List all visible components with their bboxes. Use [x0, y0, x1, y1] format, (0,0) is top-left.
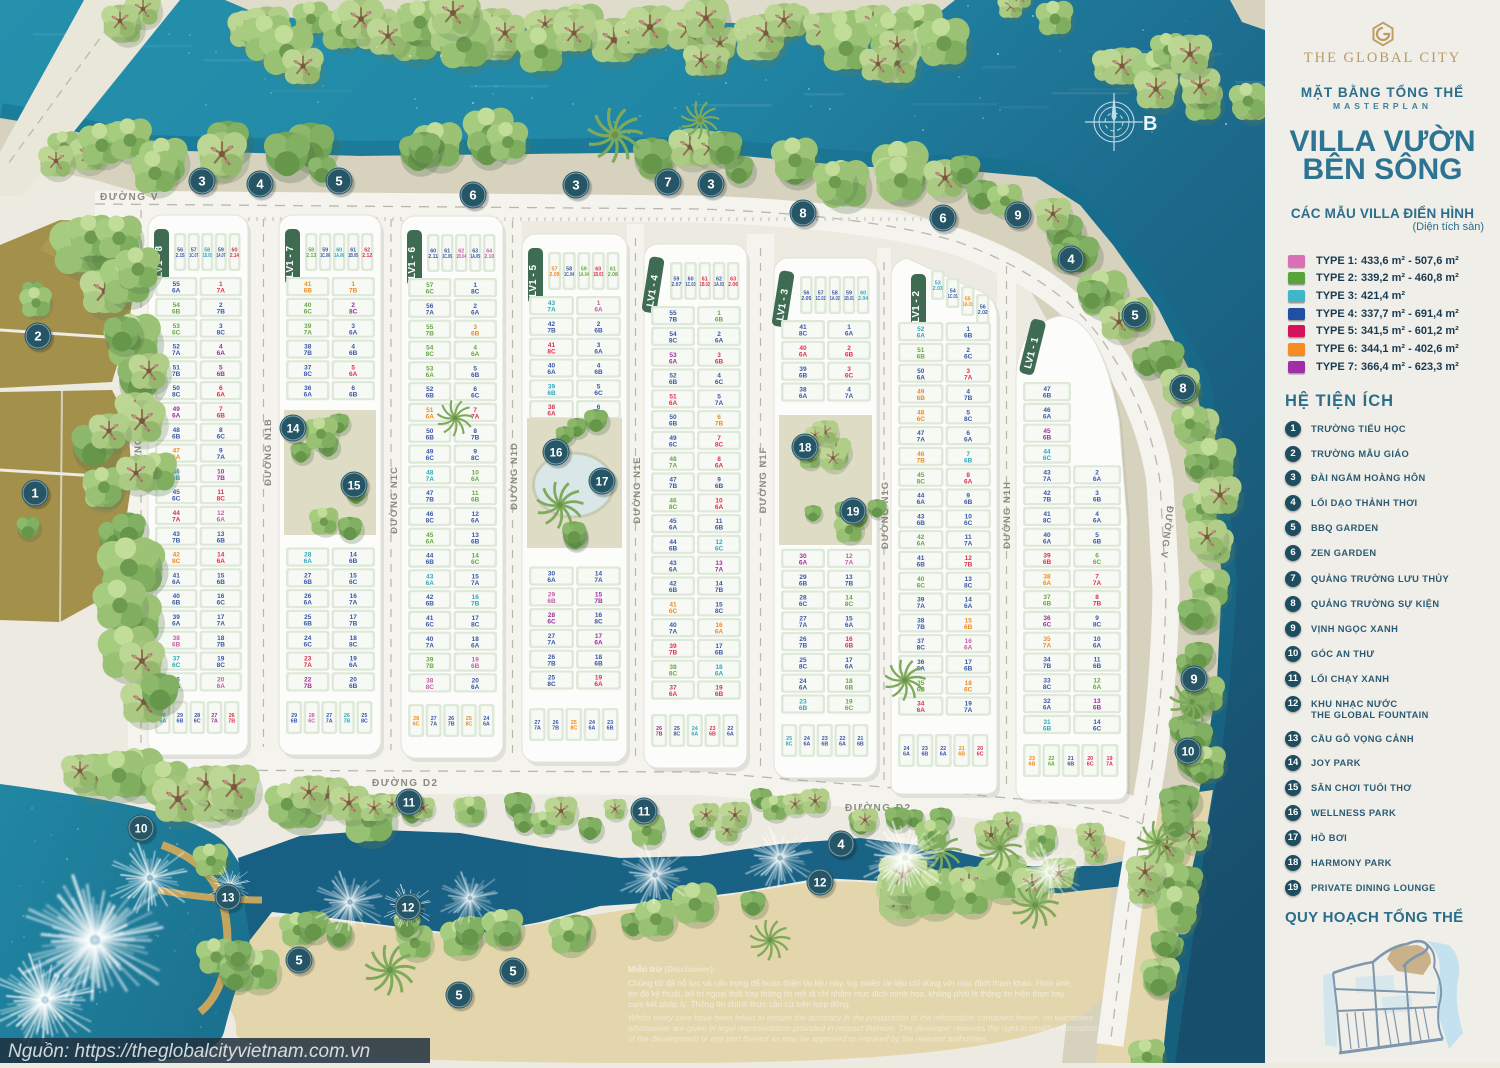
svg-text:ĐƯỜNG N1H: ĐƯỜNG N1H — [1001, 481, 1013, 549]
svg-text:176A: 176A — [845, 657, 854, 671]
svg-text:267B: 267B — [228, 713, 235, 724]
svg-text:447A: 447A — [172, 510, 181, 524]
svg-text:496C: 496C — [669, 435, 678, 449]
svg-text:126A: 126A — [471, 511, 480, 525]
svg-text:406A: 406A — [547, 363, 556, 377]
svg-text:4: 4 — [1067, 252, 1075, 267]
svg-text:536A: 536A — [426, 365, 435, 379]
svg-text:397B: 397B — [669, 643, 678, 657]
svg-text:Miễn trừ (Disclaimer):: Miễn trừ (Disclaimer): — [628, 964, 716, 974]
svg-text:378C: 378C — [304, 364, 313, 378]
svg-text:137B: 137B — [845, 574, 854, 588]
svg-text:196A: 196A — [594, 675, 603, 689]
svg-text:376A: 376A — [669, 685, 678, 699]
svg-text:206C: 206C — [1087, 756, 1094, 767]
svg-text:376C: 376C — [172, 656, 181, 670]
svg-text:467B: 467B — [917, 451, 926, 465]
svg-text:127B: 127B — [964, 555, 973, 569]
svg-text:116B: 116B — [1093, 657, 1102, 671]
svg-text:267B: 267B — [656, 726, 663, 737]
svg-text:476B: 476B — [1043, 386, 1052, 400]
svg-text:456B: 456B — [1043, 428, 1052, 442]
svg-text:386A: 386A — [799, 387, 808, 401]
svg-text:357A: 357A — [1043, 636, 1052, 650]
svg-text:306A: 306A — [547, 571, 556, 585]
svg-text:426B: 426B — [426, 594, 435, 608]
svg-text:418C: 418C — [1043, 511, 1052, 525]
svg-text:116B: 116B — [715, 518, 724, 532]
svg-text:267B: 267B — [552, 720, 559, 731]
svg-text:146B: 146B — [349, 552, 358, 566]
svg-text:9: 9 — [1014, 208, 1021, 223]
svg-text:286C: 286C — [799, 595, 808, 609]
svg-text:236B: 236B — [821, 736, 828, 747]
svg-text:477A: 477A — [917, 430, 926, 444]
svg-text:567A: 567A — [426, 303, 435, 317]
svg-text:157B: 157B — [594, 591, 603, 605]
svg-text:216B: 216B — [857, 736, 864, 747]
svg-text:437B: 437B — [172, 531, 181, 545]
svg-text:506B: 506B — [426, 428, 435, 442]
svg-text:236B: 236B — [709, 726, 716, 737]
svg-text:546B: 546B — [172, 302, 181, 316]
svg-text:456A: 456A — [426, 532, 435, 546]
svg-text:446B: 446B — [426, 553, 435, 567]
svg-text:427B: 427B — [547, 321, 556, 335]
svg-text:166A: 166A — [964, 638, 973, 652]
svg-text:416C: 416C — [669, 601, 678, 615]
svg-text:12: 12 — [814, 878, 827, 890]
svg-text:226A: 226A — [1048, 756, 1055, 767]
svg-text:226A: 226A — [839, 736, 846, 747]
svg-text:5: 5 — [1131, 308, 1138, 323]
svg-text:246A: 246A — [799, 678, 808, 692]
svg-text:197A: 197A — [964, 701, 973, 715]
svg-text:4: 4 — [256, 177, 264, 192]
svg-text:16: 16 — [550, 448, 563, 460]
svg-text:148C: 148C — [845, 595, 854, 609]
svg-text:466A: 466A — [1043, 407, 1052, 421]
svg-text:387B: 387B — [917, 617, 926, 631]
svg-text:536A: 536A — [669, 352, 678, 366]
svg-text:136B: 136B — [217, 531, 226, 545]
svg-text:386B: 386B — [172, 635, 181, 649]
svg-text:557B: 557B — [426, 324, 435, 338]
svg-text:116B: 116B — [471, 490, 480, 504]
svg-text:196A: 196A — [349, 656, 358, 670]
svg-text:12: 12 — [402, 903, 415, 915]
svg-text:117A: 117A — [964, 534, 973, 548]
svg-text:118C: 118C — [217, 489, 226, 503]
svg-text:296B: 296B — [177, 713, 184, 724]
svg-text:286C: 286C — [547, 612, 556, 626]
svg-text:548C: 548C — [426, 345, 435, 359]
svg-text:10: 10 — [135, 824, 148, 836]
svg-text:197A: 197A — [1106, 756, 1113, 767]
svg-text:548C: 548C — [669, 331, 678, 345]
svg-text:526B: 526B — [426, 386, 435, 400]
svg-text:106A: 106A — [471, 469, 480, 483]
svg-text:236B: 236B — [799, 699, 808, 713]
svg-text:186B: 186B — [594, 654, 603, 668]
svg-text:277A: 277A — [326, 713, 333, 724]
svg-text:436A: 436A — [426, 573, 435, 587]
svg-text:5: 5 — [295, 953, 302, 968]
svg-text:388C: 388C — [669, 664, 678, 678]
svg-text:508C: 508C — [172, 385, 181, 399]
svg-text:406A: 406A — [799, 345, 808, 359]
svg-text:18: 18 — [799, 443, 812, 455]
svg-text:326A: 326A — [1043, 698, 1052, 712]
svg-text:306A: 306A — [799, 553, 808, 567]
svg-text:258C: 258C — [361, 713, 368, 724]
svg-text:437A: 437A — [1043, 469, 1052, 483]
svg-text:178C: 178C — [471, 615, 480, 629]
svg-text:487A: 487A — [669, 456, 678, 470]
svg-text:2: 2 — [34, 329, 41, 344]
svg-text:556A: 556A — [172, 281, 181, 295]
svg-text:126C: 126C — [715, 539, 724, 553]
svg-text:216B: 216B — [1067, 756, 1074, 767]
svg-text:156C: 156C — [349, 572, 358, 586]
svg-text:256B: 256B — [304, 614, 313, 628]
svg-text:136B: 136B — [1093, 698, 1102, 712]
svg-text:576C: 576C — [426, 282, 435, 296]
svg-text:236B: 236B — [1029, 756, 1036, 767]
svg-text:396A: 396A — [172, 614, 181, 628]
svg-text:267B: 267B — [343, 713, 350, 724]
svg-text:258C: 258C — [786, 736, 793, 747]
svg-text:106C: 106C — [964, 513, 973, 527]
svg-text:Whilst every care have been ta: Whilst every care have been taken to ens… — [628, 1013, 1093, 1023]
svg-text:ĐƯỜNG N1C: ĐƯỜNG N1C — [388, 466, 400, 534]
svg-text:296B: 296B — [547, 591, 556, 605]
svg-text:156B: 156B — [217, 572, 226, 586]
svg-text:406C: 406C — [917, 576, 926, 590]
svg-text:436A: 436A — [669, 560, 678, 574]
svg-text:4: 4 — [837, 837, 845, 852]
svg-text:136B: 136B — [471, 532, 480, 546]
svg-text:whatsoever are given in legal: whatsoever are given in legal representa… — [628, 1023, 1097, 1033]
svg-text:138C: 138C — [964, 576, 973, 590]
svg-text:496A: 496A — [172, 406, 181, 420]
svg-text:486C: 486C — [917, 409, 926, 423]
svg-text:186A: 186A — [471, 636, 480, 650]
svg-text:246C: 246C — [304, 635, 313, 649]
svg-text:487A: 487A — [426, 469, 435, 483]
svg-text:386A: 386A — [547, 404, 556, 418]
svg-text:428C: 428C — [172, 552, 181, 566]
svg-text:237A: 237A — [304, 656, 313, 670]
svg-text:416A: 416A — [172, 572, 181, 586]
svg-text:517B: 517B — [172, 364, 181, 378]
svg-text:157A: 157A — [471, 573, 480, 587]
svg-text:267B: 267B — [448, 716, 455, 727]
svg-text:286A: 286A — [304, 552, 313, 566]
svg-text:14: 14 — [287, 424, 300, 436]
svg-text:107B: 107B — [217, 468, 226, 482]
svg-text:206B: 206B — [349, 676, 358, 690]
svg-text:407A: 407A — [669, 622, 678, 636]
svg-text:338C: 338C — [1043, 677, 1052, 691]
svg-text:277A: 277A — [547, 633, 556, 647]
svg-text:167A: 167A — [349, 593, 358, 607]
svg-text:396B: 396B — [547, 383, 556, 397]
svg-text:536C: 536C — [172, 323, 181, 337]
svg-text:ĐƯỜNG D2: ĐƯỜNG D2 — [372, 776, 439, 789]
svg-text:236B: 236B — [921, 746, 928, 757]
svg-text:516A: 516A — [426, 407, 435, 421]
svg-text:196B: 196B — [471, 657, 480, 671]
svg-text:388C: 388C — [426, 677, 435, 691]
svg-text:227B: 227B — [304, 676, 313, 690]
svg-text:446A: 446A — [917, 493, 926, 507]
svg-text:11: 11 — [403, 798, 416, 810]
svg-text:156B: 156B — [964, 617, 973, 631]
svg-text:366A: 366A — [304, 385, 313, 399]
svg-text:446C: 446C — [1043, 449, 1052, 463]
svg-text:126A: 126A — [1093, 677, 1102, 691]
svg-text:456A: 456A — [669, 518, 678, 532]
svg-text:286C: 286C — [413, 716, 420, 727]
svg-text:436B: 436B — [917, 513, 926, 527]
svg-text:407A: 407A — [426, 636, 435, 650]
svg-text:168C: 168C — [594, 612, 603, 626]
svg-text:468C: 468C — [669, 497, 678, 511]
svg-text:426B: 426B — [669, 581, 678, 595]
svg-text:506B: 506B — [669, 414, 678, 428]
svg-text:258C: 258C — [673, 726, 680, 737]
svg-text:397B: 397B — [426, 657, 435, 671]
svg-text:176B: 176B — [715, 643, 724, 657]
svg-text:496B: 496B — [917, 389, 926, 403]
svg-text:7: 7 — [664, 175, 671, 190]
svg-text:ĐƯỜNG N1B: ĐƯỜNG N1B — [262, 418, 274, 486]
svg-text:147A: 147A — [594, 571, 603, 585]
svg-text:196B: 196B — [715, 685, 724, 699]
svg-text:468C: 468C — [426, 511, 435, 525]
svg-text:1: 1 — [31, 486, 38, 501]
svg-text:276B: 276B — [304, 572, 313, 586]
svg-text:277A: 277A — [211, 713, 218, 724]
svg-text:3: 3 — [198, 174, 205, 189]
svg-text:206C: 206C — [977, 746, 984, 757]
svg-text:177B: 177B — [349, 614, 358, 628]
svg-text:346A: 346A — [917, 701, 926, 715]
svg-text:386A: 386A — [1043, 573, 1052, 587]
svg-text:396B: 396B — [799, 366, 808, 380]
svg-text:236B: 236B — [607, 720, 614, 731]
svg-text:366C: 366C — [1043, 615, 1052, 629]
svg-text:286C: 286C — [308, 713, 315, 724]
svg-text:6: 6 — [469, 188, 476, 203]
svg-text:286C: 286C — [194, 713, 201, 724]
svg-text:527A: 527A — [172, 344, 181, 358]
svg-text:516B: 516B — [917, 347, 926, 361]
svg-text:3: 3 — [572, 178, 579, 193]
svg-text:477B: 477B — [426, 490, 435, 504]
svg-text:146A: 146A — [964, 597, 973, 611]
svg-text:277A: 277A — [430, 716, 437, 727]
svg-text:516A: 516A — [669, 393, 678, 407]
svg-text:496C: 496C — [426, 449, 435, 463]
svg-text:526B: 526B — [669, 373, 678, 387]
svg-text:477B: 477B — [669, 477, 678, 491]
svg-text:Nguồn: https://theglobalcityvi: Nguồn: https://theglobalcityvietnam.com.… — [8, 1041, 370, 1062]
svg-text:147B: 147B — [715, 581, 724, 595]
svg-text:186A: 186A — [715, 664, 724, 678]
svg-text:Chúng tôi đã nỗ lực và cẩn trọ: Chúng tôi đã nỗ lực và cẩn trọng để hoàn… — [628, 978, 1072, 988]
svg-text:19: 19 — [847, 507, 860, 519]
svg-text:226A: 226A — [940, 746, 947, 757]
svg-text:9: 9 — [1190, 672, 1197, 687]
svg-text:437A: 437A — [547, 300, 556, 314]
svg-text:5: 5 — [455, 988, 462, 1003]
svg-text:166C: 166C — [217, 593, 226, 607]
svg-text:456C: 456C — [172, 489, 181, 503]
svg-text:226A: 226A — [727, 726, 734, 737]
svg-text:137A: 137A — [715, 560, 724, 574]
svg-text:316B: 316B — [1043, 719, 1052, 733]
svg-text:sơ đồ kỹ thuật, bố trí ngoại t: sơ đồ kỹ thuật, bố trí ngoại thất hay th… — [628, 989, 1066, 999]
svg-text:146A: 146A — [217, 552, 226, 566]
svg-text:198C: 198C — [217, 656, 226, 670]
svg-text:296B: 296B — [291, 713, 298, 724]
svg-text:526A: 526A — [917, 326, 926, 340]
svg-text:216B: 216B — [958, 746, 965, 757]
svg-text:8: 8 — [1179, 381, 1186, 396]
svg-text:11: 11 — [638, 807, 651, 819]
svg-text:127A: 127A — [845, 553, 854, 567]
svg-text:10: 10 — [1182, 747, 1195, 759]
svg-text:146C: 146C — [1093, 719, 1102, 733]
svg-text:156A: 156A — [845, 615, 854, 629]
svg-text:176A: 176A — [594, 633, 603, 647]
svg-text:258C: 258C — [570, 720, 577, 731]
svg-text:146C: 146C — [471, 553, 480, 567]
svg-text:166A: 166A — [715, 622, 724, 636]
svg-text:LV1 - 6: LV1 - 6 — [407, 247, 418, 279]
svg-text:296B: 296B — [799, 574, 808, 588]
svg-text:166B: 166B — [845, 636, 854, 650]
svg-text:LV1 - 2: LV1 - 2 — [911, 291, 922, 323]
svg-text:376B: 376B — [1043, 594, 1052, 608]
svg-text:446B: 446B — [669, 539, 678, 553]
svg-text:196C: 196C — [845, 699, 854, 713]
svg-text:406B: 406B — [172, 593, 181, 607]
svg-text:397A: 397A — [917, 597, 926, 611]
svg-text:258C: 258C — [799, 657, 808, 671]
svg-text:126A: 126A — [217, 510, 226, 524]
svg-text:557B: 557B — [669, 310, 678, 324]
svg-text:206A: 206A — [217, 676, 226, 690]
svg-text:266A: 266A — [304, 593, 313, 607]
svg-text:106A: 106A — [715, 497, 724, 511]
svg-text:LV1 - 5: LV1 - 5 — [528, 265, 539, 297]
svg-text:387B: 387B — [304, 344, 313, 358]
svg-text:378C: 378C — [917, 638, 926, 652]
svg-text:15: 15 — [348, 481, 361, 493]
svg-text:418C: 418C — [547, 342, 556, 356]
svg-text:206A: 206A — [471, 677, 480, 691]
svg-text:418C: 418C — [799, 324, 808, 338]
svg-text:458C: 458C — [917, 472, 926, 486]
svg-text:277A: 277A — [534, 720, 541, 731]
svg-text:B: B — [1143, 113, 1157, 135]
svg-text:258C: 258C — [547, 675, 556, 689]
svg-text:of the development or any part: of the development or any part thereof a… — [628, 1034, 988, 1044]
svg-text:187B: 187B — [217, 635, 226, 649]
svg-text:347B: 347B — [1043, 657, 1052, 671]
svg-text:246A: 246A — [589, 720, 596, 731]
svg-text:416B: 416B — [917, 555, 926, 569]
svg-text:246A: 246A — [903, 746, 910, 757]
svg-text:106A: 106A — [1093, 636, 1102, 650]
svg-text:8: 8 — [799, 206, 806, 221]
svg-text:406A: 406A — [1043, 532, 1052, 546]
svg-text:396B: 396B — [1043, 553, 1052, 567]
svg-text:186B: 186B — [845, 678, 854, 692]
svg-text:cam kết pháp lý. Thông tin chí: cam kết pháp lý. Thông tin chính thức cầ… — [628, 999, 851, 1009]
svg-text:506A: 506A — [917, 368, 926, 382]
svg-text:246A: 246A — [803, 736, 810, 747]
svg-text:406C: 406C — [304, 302, 313, 316]
svg-text:366A: 366A — [917, 659, 926, 673]
svg-text:246A: 246A — [691, 726, 698, 737]
svg-text:17: 17 — [596, 477, 609, 489]
svg-text:ĐƯỜNG N1E: ĐƯỜNG N1E — [631, 456, 643, 523]
svg-text:LV1 - 7: LV1 - 7 — [285, 246, 296, 278]
svg-text:267B: 267B — [799, 636, 808, 650]
svg-text:416B: 416B — [304, 281, 313, 295]
svg-text:3: 3 — [707, 177, 714, 192]
svg-text:167B: 167B — [471, 594, 480, 608]
svg-text:13: 13 — [222, 893, 235, 905]
svg-text:177A: 177A — [217, 614, 226, 628]
svg-text:5: 5 — [335, 174, 342, 189]
svg-text:176B: 176B — [964, 659, 973, 673]
svg-text:188C: 188C — [349, 635, 358, 649]
svg-text:246A: 246A — [483, 716, 490, 727]
svg-text:486B: 486B — [172, 427, 181, 441]
svg-text:416C: 416C — [426, 615, 435, 629]
svg-text:ĐƯỜNG N1D: ĐƯỜNG N1D — [508, 442, 520, 510]
svg-text:6: 6 — [939, 211, 946, 226]
svg-text:426A: 426A — [917, 534, 926, 548]
svg-text:277A: 277A — [799, 615, 808, 629]
svg-text:5: 5 — [509, 964, 516, 979]
svg-text:258C: 258C — [465, 716, 472, 727]
svg-text:ĐƯỜNG N1F: ĐƯỜNG N1F — [757, 447, 769, 514]
svg-text:158C: 158C — [715, 601, 724, 615]
svg-text:186C: 186C — [964, 680, 973, 694]
svg-text:397A: 397A — [304, 323, 313, 337]
svg-text:267B: 267B — [547, 654, 556, 668]
svg-text:427B: 427B — [1043, 490, 1052, 504]
